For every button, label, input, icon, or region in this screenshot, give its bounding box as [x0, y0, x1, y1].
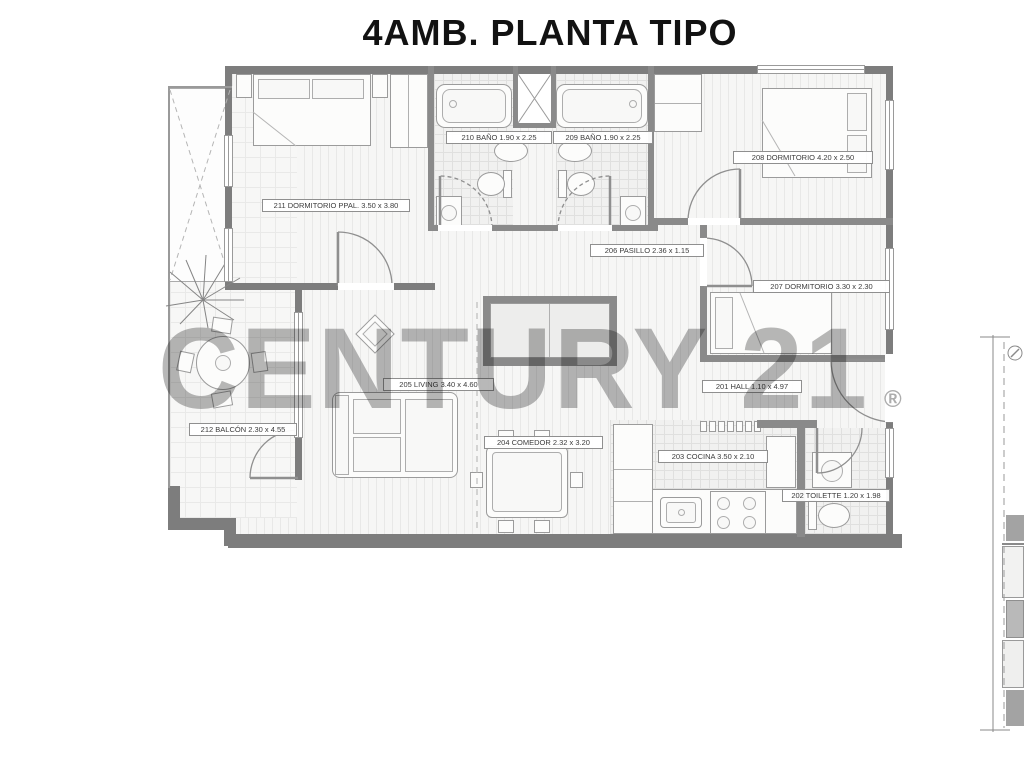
sofa [332, 392, 458, 478]
kitchen-cabinet [613, 424, 653, 534]
sink-basin [821, 460, 843, 482]
room-label-dormitorio-208: 208 DORMITORIO 4.20 x 2.50 [733, 151, 873, 164]
bathtub-drain [629, 100, 637, 108]
toilet [567, 172, 595, 196]
burner [743, 497, 756, 510]
strip-room [1002, 546, 1024, 598]
window [885, 100, 894, 170]
wall-closet-west [483, 296, 490, 366]
wall-bedroom-207-south [700, 355, 893, 362]
bed [710, 292, 832, 354]
sofa-back [335, 395, 349, 475]
burner [743, 516, 756, 529]
room-label-living: 205 LIVING 3.40 x 4.60 [383, 378, 494, 391]
wall-bathrooms-west [428, 66, 434, 230]
room-label-dormitorio-ppal: 211 DORMITORIO PPAL. 3.50 x 3.80 [262, 199, 410, 212]
bathtub-drain [449, 100, 457, 108]
cabinet-line [614, 501, 652, 502]
room-label-bano-210: 210 BAÑO 1.90 x 2.25 [446, 131, 552, 144]
wall-duct-east [551, 66, 556, 128]
closet-block [490, 303, 610, 358]
toilet [818, 503, 850, 528]
sink-basin [441, 205, 457, 221]
toilet [477, 172, 505, 196]
wall-kitchen-north [757, 420, 817, 428]
burner [717, 497, 730, 510]
strip-wall-line [1002, 543, 1024, 545]
wall-bedroom-208-west [648, 66, 654, 225]
wall-closet-east [610, 296, 617, 366]
bathtub [556, 84, 648, 128]
wall-closet-south [487, 358, 617, 366]
window [224, 228, 233, 282]
toilette-sink [812, 452, 852, 488]
table-center [215, 355, 231, 371]
balcony-edge-left [168, 86, 170, 488]
strip-wall-block [1006, 600, 1024, 638]
bed [762, 88, 872, 178]
nightstand [236, 74, 252, 98]
burner [717, 516, 730, 529]
bed-main [253, 74, 371, 146]
room-label-pasillo: 206 PASILLO 2.36 x 1.15 [590, 244, 704, 257]
wardrobe [654, 74, 702, 132]
sink-basin [625, 205, 641, 221]
door-opening [558, 225, 612, 231]
door-opening [338, 283, 394, 290]
page-title: 4AMB. PLANTA TIPO [330, 12, 770, 54]
hall-closet-module [736, 421, 743, 432]
closet-divider [549, 304, 550, 357]
chair [498, 520, 514, 533]
hall-closet-module [700, 421, 707, 432]
balcony-edge-top [168, 86, 232, 88]
chair [570, 472, 583, 488]
strip-wall-block [1006, 515, 1024, 541]
chair [534, 520, 550, 533]
kitchen-counter-right [766, 436, 796, 488]
nightstand [372, 74, 388, 98]
pillow [847, 93, 867, 131]
pillow [715, 297, 733, 349]
wall-bedroom-208-south [648, 218, 893, 225]
pillow [258, 79, 310, 99]
hall-closet-module [709, 421, 716, 432]
sofa-cushion [405, 399, 453, 472]
kitchen-sink [660, 497, 702, 528]
room-label-hall: 201 HALL 1.10 x 4.97 [702, 380, 802, 393]
room-label-balcon: 212 BALCÓN 2.30 x 4.55 [189, 423, 297, 436]
wall-kitchen-toilette [797, 428, 805, 537]
north-arrow-icon [1008, 346, 1022, 360]
window [885, 428, 894, 478]
wardrobe [390, 74, 428, 148]
duct-shaft [518, 74, 551, 123]
hall-closet-module [727, 421, 734, 432]
toilet-tank [808, 500, 817, 530]
dining-table-top [492, 452, 562, 512]
chair [211, 317, 233, 335]
dining-table [486, 446, 568, 518]
wall-duct-south [513, 123, 556, 128]
registered-trademark-icon: ® [884, 386, 902, 414]
strip-room [1002, 640, 1024, 688]
room-label-bano-209: 209 BAÑO 1.90 x 2.25 [553, 131, 653, 144]
hall-closet-module [718, 421, 725, 432]
cabinet-line [614, 469, 652, 470]
room-label-cocina: 203 COCINA 3.50 x 2.10 [658, 450, 768, 463]
armchair-seat [362, 321, 387, 346]
faucet [678, 509, 685, 516]
wall-hallway-south [487, 296, 617, 303]
wall-duct-west [513, 66, 518, 128]
balcony-door-window [294, 312, 303, 438]
wall-balcony-step-right [224, 518, 236, 546]
window [224, 135, 233, 187]
hall-closet-module [745, 421, 752, 432]
floor-plan-page: 4AMB. PLANTA TIPO [0, 0, 1024, 768]
chair [251, 351, 269, 373]
wall-bedroom-main-south [225, 283, 435, 290]
stove [710, 491, 766, 534]
window [757, 65, 865, 74]
wardrobe-shelf [655, 103, 701, 104]
room-label-comedor: 204 COMEDOR 2.32 x 3.20 [484, 436, 603, 449]
balcony-table [196, 336, 250, 390]
north-arrow-line [1011, 349, 1019, 357]
wardrobe-rail [408, 75, 409, 147]
balcony-void [168, 88, 232, 282]
chair [470, 472, 483, 488]
door-opening [438, 225, 492, 231]
room-label-dormitorio-207: 207 DORMITORIO 3.30 x 2.30 [753, 280, 890, 293]
sofa-cushion [353, 437, 401, 472]
room-label-toilette: 202 TOILETTE 1.20 x 1.98 [782, 489, 890, 502]
sofa-cushion [353, 399, 401, 434]
door-opening [688, 218, 740, 225]
pillow [312, 79, 364, 99]
toilet-tank [558, 170, 567, 198]
strip-wall-block [1006, 690, 1024, 726]
bathtub [436, 84, 512, 128]
